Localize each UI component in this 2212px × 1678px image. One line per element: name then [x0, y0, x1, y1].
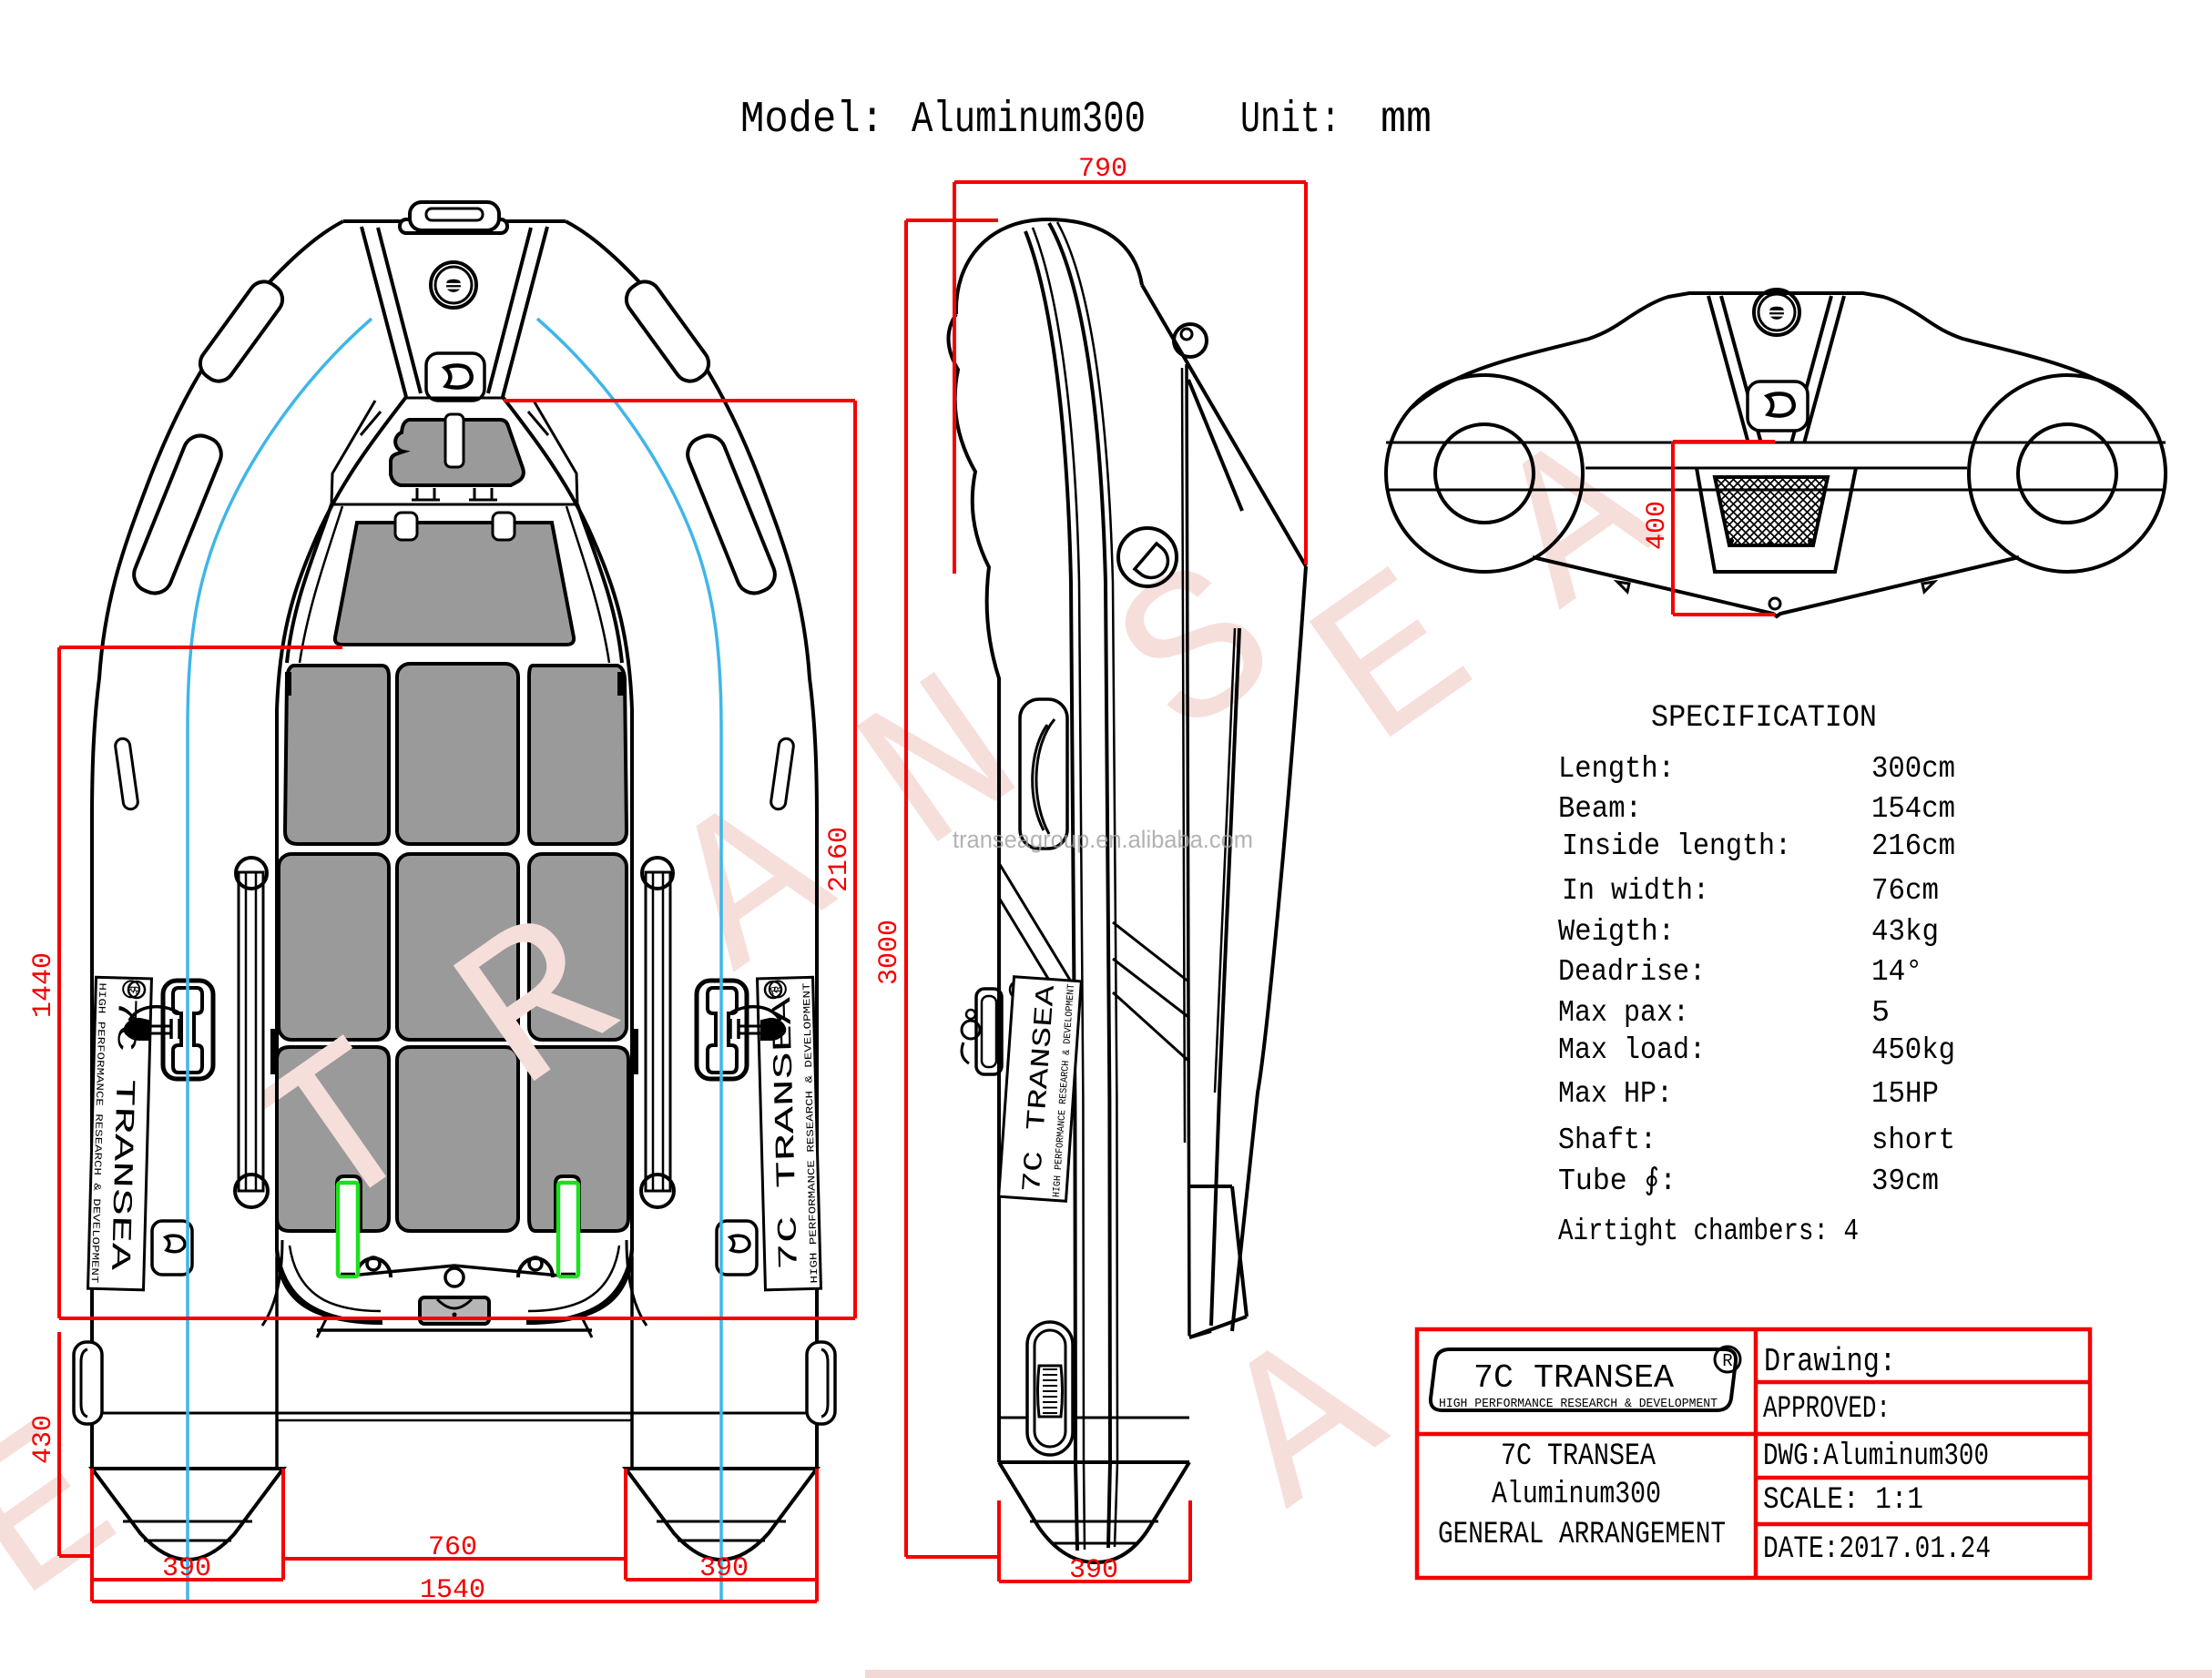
svg-text:76cm: 76cm — [1871, 874, 1939, 908]
svg-text:Aluminum300: Aluminum300 — [912, 96, 1146, 145]
svg-text:14°: 14° — [1871, 955, 1922, 989]
svg-text:Deadrise:: Deadrise: — [1558, 955, 1706, 989]
svg-text:Airtight chambers: 4: Airtight chambers: 4 — [1558, 1215, 1859, 1248]
svg-text:450kg: 450kg — [1871, 1033, 1955, 1067]
svg-text:7C TRANSEA: 7C TRANSEA — [1501, 1439, 1656, 1474]
svg-text:A: A — [1184, 1289, 1429, 1562]
svg-text:1440: 1440 — [28, 952, 59, 1018]
svg-text:15HP: 15HP — [1871, 1077, 1939, 1111]
svg-text:GENERAL ARRANGEMENT: GENERAL ARRANGEMENT — [1438, 1518, 1726, 1552]
svg-text:Max HP:: Max HP: — [1558, 1077, 1673, 1111]
svg-text:390: 390 — [162, 1553, 211, 1584]
svg-text:R: R — [1722, 1351, 1732, 1371]
svg-text:mm: mm — [1381, 96, 1432, 145]
svg-text:Shaft:: Shaft: — [1558, 1124, 1656, 1157]
svg-text:390: 390 — [1069, 1555, 1118, 1586]
svg-text:In width:: In width: — [1562, 874, 1709, 908]
svg-text:760: 760 — [428, 1532, 477, 1563]
svg-text:Weigth:: Weigth: — [1558, 915, 1675, 949]
svg-text:Beam:: Beam: — [1558, 792, 1642, 826]
svg-text:Max load:: Max load: — [1558, 1033, 1706, 1067]
svg-text:216cm: 216cm — [1871, 829, 1955, 863]
svg-text:2160: 2160 — [824, 827, 855, 892]
svg-text:SCALE: 1:1: SCALE: 1:1 — [1763, 1483, 1923, 1518]
svg-text:Unit:: Unit: — [1240, 96, 1340, 145]
svg-text:154cm: 154cm — [1871, 792, 1955, 826]
svg-text:Tube ∮:: Tube ∮: — [1558, 1164, 1677, 1198]
svg-text:N: N — [821, 631, 1066, 904]
svg-text:DWG:Aluminum300: DWG:Aluminum300 — [1763, 1439, 1989, 1474]
svg-text:39cm: 39cm — [1871, 1164, 1939, 1198]
svg-text:390: 390 — [699, 1553, 749, 1584]
svg-text:430: 430 — [28, 1415, 59, 1464]
svg-text:43kg: 43kg — [1871, 915, 1939, 949]
svg-text:790: 790 — [1078, 154, 1127, 185]
svg-text:Aluminum300: Aluminum300 — [1492, 1478, 1661, 1512]
svg-text:DATE:2017.01.24: DATE:2017.01.24 — [1763, 1532, 1991, 1567]
svg-text:Inside length:: Inside length: — [1562, 829, 1791, 863]
svg-text:SPECIFICATION: SPECIFICATION — [1651, 701, 1877, 736]
svg-text:E: E — [1274, 526, 1519, 799]
svg-text:Max pax:: Max pax: — [1558, 996, 1689, 1030]
svg-text:Model:: Model: — [740, 96, 884, 145]
svg-text:300cm: 300cm — [1871, 752, 1955, 786]
svg-text:1540: 1540 — [420, 1575, 485, 1606]
svg-text:short: short — [1871, 1124, 1955, 1157]
svg-text:Length:: Length: — [1558, 752, 1675, 786]
svg-text:400: 400 — [1642, 501, 1673, 550]
svg-text:transeagroup.en.alibaba.com: transeagroup.en.alibaba.com — [953, 826, 1253, 853]
svg-text:7C TRANSEA: 7C TRANSEA — [1473, 1359, 1674, 1397]
svg-text:Drawing:: Drawing: — [1764, 1343, 1896, 1380]
svg-text:3000: 3000 — [874, 920, 905, 985]
svg-text:HIGH PERFORMANCE RESEARCH & DE: HIGH PERFORMANCE RESEARCH & DEVELOPMENT — [1439, 1397, 1718, 1411]
svg-text:APPROVED:: APPROVED: — [1763, 1392, 1891, 1427]
svg-text:5: 5 — [1871, 996, 1890, 1030]
